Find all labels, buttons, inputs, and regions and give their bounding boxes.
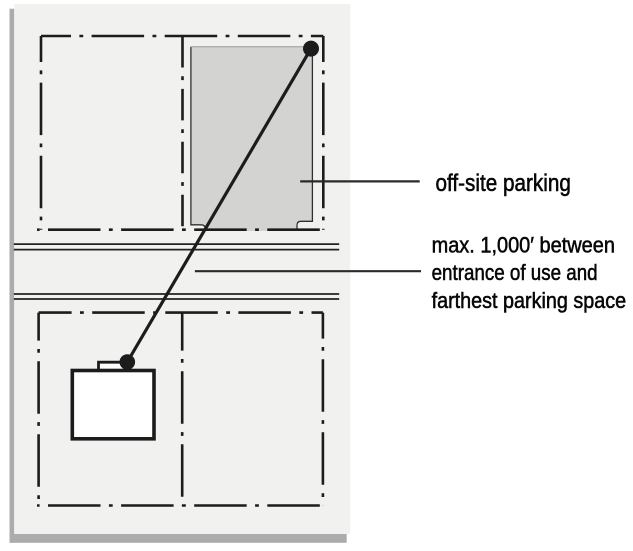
svg-text:farthest parking space: farthest parking space bbox=[432, 289, 626, 313]
svg-text:off-site parking: off-site parking bbox=[436, 169, 571, 196]
svg-text:entrance of use and: entrance of use and bbox=[432, 261, 598, 286]
svg-text:max. 1,000′ between: max. 1,000′ between bbox=[432, 232, 615, 257]
